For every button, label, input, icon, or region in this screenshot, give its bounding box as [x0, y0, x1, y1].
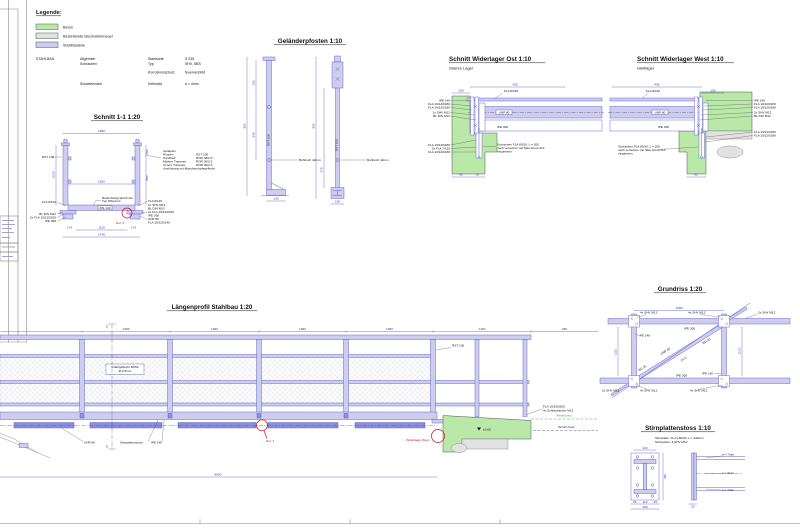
spec-cell: Stahlsorte: [148, 57, 164, 61]
legend-swatch-bruchstein: [36, 33, 58, 39]
spec-cell: Typ: [148, 62, 154, 66]
profil-widerlager-west: Widerlager West: [406, 438, 429, 442]
profil-det1: Det. 1: [266, 439, 275, 443]
rail-row: Ausführung mit Maschendrahtgeflecht: [163, 167, 215, 171]
spec-cell: Korrosionsschutz: [148, 71, 175, 75]
spec-cell: Schweissnaht: [80, 82, 102, 86]
dim: 280: [562, 327, 567, 331]
dim: 1740: [98, 233, 105, 237]
spec-cell: SHV, SBS: [185, 62, 201, 66]
part-label: 4x SHV M12: [690, 389, 708, 393]
part-label: Stirnplattenstoss: [120, 441, 143, 445]
pfosten-post-text: RST 100: [335, 139, 339, 151]
dim: 455: [512, 83, 517, 87]
dim: 1110: [98, 226, 105, 230]
beam-label: UNP 80: [499, 110, 510, 114]
legend-swatch-beton: [36, 24, 58, 30]
mesh-note-line: Ø 2.5mm: [119, 369, 132, 373]
part-label: FLA 10/120/180: [428, 106, 450, 110]
anker-note-line: eingiessen: [618, 152, 633, 156]
dim: 1025: [52, 171, 56, 178]
dim: 1980: [211, 327, 218, 331]
part-label: FLA 10/120/140: [148, 221, 170, 225]
part-label: 2x SHV M12: [758, 311, 776, 315]
beam-label: IPE 300: [658, 125, 669, 129]
dim: 275: [320, 167, 324, 172]
dim: 1980: [386, 327, 393, 331]
dim: 1460: [479, 327, 486, 331]
weld-label: a = 7mm: [722, 488, 735, 492]
pfosten-hole-label: Bohrloch 42mm: [299, 158, 321, 162]
dim: 455: [654, 83, 659, 87]
dim: 170: [67, 226, 72, 230]
part-label: FLA 10/120/180: [428, 150, 450, 154]
stoss-title: Stirnplattenstoss 1:10: [645, 425, 711, 432]
beam-label: IPE 300: [497, 125, 508, 129]
part-label: 2x SHV M12: [602, 389, 620, 393]
dim: 35: [653, 500, 657, 504]
dim: 1500: [98, 180, 105, 184]
profil-title: Längenprofil Stahlbau 1:20: [172, 304, 253, 311]
sheet-frame-fragment: [0, 0, 27, 342]
schnitt11-deck-label: IPE 140: [99, 206, 110, 210]
dim: 1980: [676, 306, 683, 310]
pfosten-hole-label: Bohrloch 42mm: [367, 158, 389, 162]
level-label: ±0.00: [483, 428, 491, 432]
part-label: 4x SHV M12: [688, 311, 706, 315]
dim: 20: [691, 505, 695, 509]
section-gelaenderpfosten: Geländerpfosten 1:10 RST 100 950 150 545…: [243, 38, 390, 204]
spec-group: STAHLBAU: [36, 57, 55, 61]
section-schnitt-1-1: Schnitt 1-1 1:20 IPE 140 Det. 2 Bodenbel…: [30, 114, 215, 237]
part-label: IPE 300: [45, 219, 56, 223]
legend-label-stahl: Stahlbauteile: [63, 43, 85, 47]
dim: 110: [643, 500, 648, 504]
dim: 440: [663, 474, 667, 479]
dim: 2670: [679, 355, 687, 362]
dim: 1980: [299, 327, 306, 331]
wlwest-subtitle: Gleitlager: [637, 66, 655, 71]
part-label: UNP 80: [84, 441, 95, 445]
dim: 130: [335, 200, 340, 204]
legend-swatch-stahl: [36, 42, 58, 48]
dim: 950: [312, 123, 316, 128]
schnitt11-post-label: RST 100: [42, 155, 54, 159]
part-label: BL DIN M12: [754, 114, 771, 118]
part-label: IPE 140: [639, 334, 650, 338]
spec-cell: a = 4mm: [185, 82, 199, 86]
part-label: 4x SHV M12: [640, 389, 658, 393]
part-label: 4x Schraubanker M12: [543, 409, 574, 413]
schnitt11-detail-marker: Det. 2: [116, 221, 125, 225]
part-label: UNP 80: [660, 346, 671, 355]
dim: 170: [131, 226, 136, 230]
dim: 950: [243, 123, 247, 128]
pfosten-post-text: RST 100: [266, 134, 270, 146]
dim: 150: [710, 89, 715, 93]
stoss-note-line: Schrauben: 8 SHV M12: [655, 440, 688, 444]
dim: 1170: [738, 347, 742, 354]
grundriss-title: Grundriss 1:20: [658, 286, 703, 293]
section-widerlager-west: Schnitt Widerlager West 1:10 Gleitlager …: [608, 56, 776, 177]
legend-label-bruchstein: Bestehende Bruchsteinmauer: [63, 34, 114, 38]
spec-cell: feuerverzinkt: [185, 71, 205, 75]
legend-label-beton: Beton: [63, 25, 73, 29]
section-grundriss: Grundriss 1:20 1980 1110 1170 2670 4x SH…: [600, 286, 790, 398]
dim: 850: [145, 175, 149, 180]
dim: 150: [145, 149, 149, 154]
spec-table: STAHLBAU Allgemein Stahlsorte S 235 Schr…: [36, 57, 205, 86]
spec-cell: Kehlnaht: [148, 82, 162, 86]
legend: Legende: Beton Bestehende Bruchsteinmaue…: [36, 10, 114, 48]
terrain-label: Terrain best.: [558, 425, 575, 429]
wlost-subtitle: Starres Lager: [449, 66, 474, 71]
section-stirnplattenstoss: Stirnplattenstoss 1:10 Stirnplatte: FLA …: [631, 425, 745, 509]
pfosten-title: Geländerpfosten 1:10: [278, 38, 343, 45]
title-block-edge: [0, 216, 18, 261]
beam-label: FLA 8/120: [504, 89, 518, 93]
anker-note-line: eingiessen: [497, 150, 512, 154]
drawing-sheet: Legende: Beton Bestehende Bruchsteinmaue…: [0, 0, 800, 530]
spec-cell: Schrauben: [80, 62, 97, 66]
weld-label: a = 4mm: [722, 471, 735, 475]
schnitt11-title: Schnitt 1-1 1:20: [94, 114, 141, 121]
bottom-border: [0, 520, 800, 524]
section-marker: 1: [106, 445, 108, 449]
wlwest-title: Schnitt Widerlager West 1:10: [637, 56, 724, 63]
part-label: FLA 8/120: [42, 200, 56, 204]
dim: 1950: [98, 129, 105, 133]
beam-label: FLA 8/120: [646, 89, 660, 93]
part-label: FLA 10/120/180: [754, 106, 776, 110]
part-label: RST 100: [452, 344, 464, 348]
weld-label: a = 7mm: [722, 453, 735, 457]
part-label: IPE 300: [684, 327, 695, 331]
schnitt11-note-line: Typ Offenrost: [102, 199, 121, 203]
wlost-title: Schnitt Widerlager Ost 1:10: [449, 56, 532, 63]
section-marker: 1: [106, 325, 108, 329]
spec-cell: S 235: [185, 57, 194, 61]
dim: 150: [252, 80, 256, 85]
beam-label: UNP 80: [655, 110, 666, 114]
section-widerlager-ost: Schnitt Widerlager Ost 1:10 Starres Lage…: [428, 56, 604, 177]
dim: 35: [633, 500, 637, 504]
dim: 180: [642, 505, 647, 509]
part-label: 4x SHV M12: [640, 311, 658, 315]
part-label: BL DIN M12: [433, 114, 450, 118]
part-label: IPE 300: [676, 374, 687, 378]
legend-title: Legende:: [36, 10, 62, 16]
dim: 130: [273, 197, 278, 201]
dim: 95: [459, 173, 463, 177]
dim: 8900: [215, 472, 222, 476]
part-label: FLA 10/120/180: [754, 134, 776, 138]
dim: 150: [458, 89, 463, 93]
dim: 1980: [123, 327, 130, 331]
section-laengenprofil: Längenprofil Stahlbau 1:20 Drahtgeflecht…: [0, 304, 598, 477]
spec-cell: Allgemein: [80, 57, 95, 61]
dim: 110: [643, 446, 648, 450]
terrain-label: Terrain neu: [556, 414, 572, 418]
dim: 545: [252, 132, 256, 137]
dim: 1110: [614, 349, 618, 356]
dim: 95: [694, 173, 698, 177]
part-label: IPE 140: [702, 372, 713, 376]
part-label: IPE 140: [151, 441, 162, 445]
dim: 30: [476, 173, 480, 177]
